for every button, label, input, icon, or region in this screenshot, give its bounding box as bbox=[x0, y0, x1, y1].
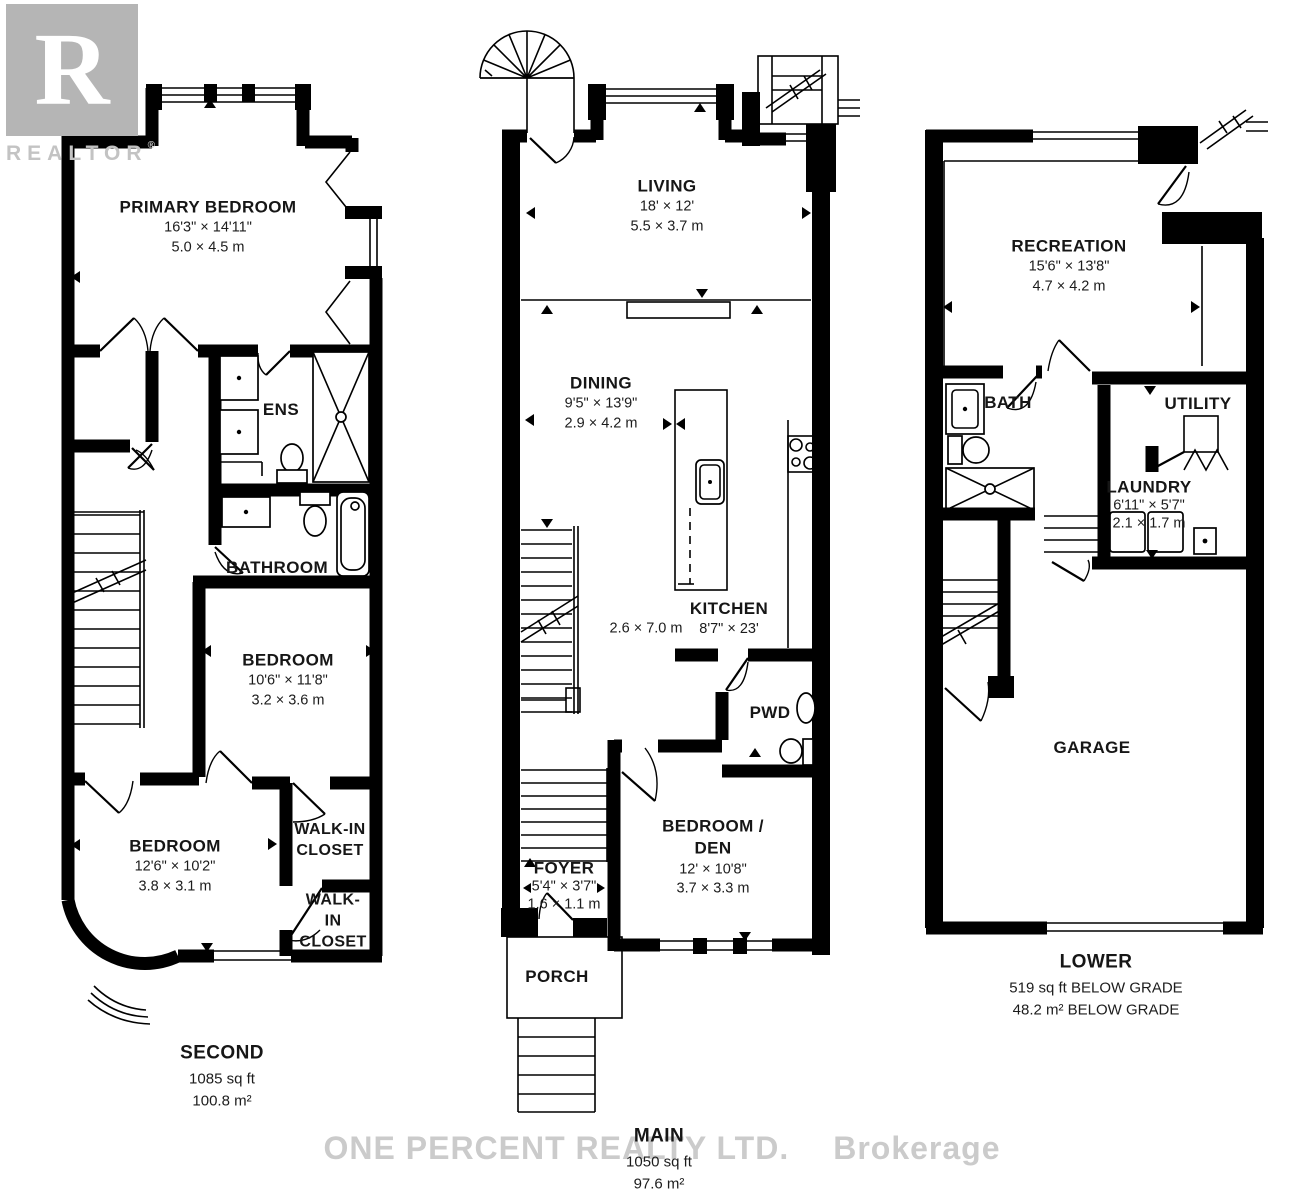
realtor-watermark: R REALTOR ® bbox=[6, 4, 155, 166]
room-label-recreation: RECREATION 15'6" × 13'8" 4.7 × 4.2 m bbox=[1011, 236, 1126, 297]
floor-label-main: MAIN 1050 sq ft 97.6 m² bbox=[626, 1122, 692, 1196]
main-stairs bbox=[521, 526, 607, 862]
lower-floor-plan bbox=[926, 110, 1268, 931]
floor-label-lower: LOWER 519 sq ft BELOW GRADE 48.2 m² BELO… bbox=[1009, 948, 1182, 1022]
room-label-primary-bedroom: PRIMARY BEDROOM 16'3" × 14'11" 5.0 × 4.5… bbox=[120, 197, 297, 258]
room-label-kitchen-metric: 2.6 × 7.0 m bbox=[610, 619, 683, 638]
exterior-stairs bbox=[758, 56, 860, 124]
room-label-bedroom-den: BEDROOM / DEN 12' × 10'8" 3.7 × 3.3 m bbox=[651, 815, 775, 898]
second-stairs bbox=[70, 510, 146, 728]
brokerage-suffix: Brokerage bbox=[833, 1130, 1000, 1167]
room-label-walk-in-closet-1: WALK-IN CLOSET bbox=[280, 819, 380, 861]
brokerage-name: ONE PERCENT REALTY LTD. bbox=[324, 1130, 790, 1167]
floor-label-second: SECOND 1085 sq ft 100.8 m² bbox=[180, 1039, 264, 1113]
room-label-bedroom-bottom: BEDROOM 12'6" × 10'2" 3.8 × 3.1 m bbox=[129, 836, 221, 897]
realtor-logo-letter: R bbox=[34, 18, 109, 122]
room-label-bath: BATH bbox=[984, 392, 1032, 414]
room-label-living: LIVING 18' × 12' 5.5 × 3.7 m bbox=[631, 176, 704, 237]
room-label-dining: DINING 9'5" × 13'9" 2.9 × 4.2 m bbox=[565, 373, 638, 434]
realtor-logo-text: REALTOR ® bbox=[6, 142, 155, 166]
room-label-foyer: FOYER 5'4" × 3'7" 1.6 × 1.1 m bbox=[528, 858, 601, 913]
room-label-ensuite: ENS bbox=[263, 399, 299, 421]
realtor-logo-square: R bbox=[6, 4, 138, 136]
room-label-porch: PORCH bbox=[525, 966, 588, 988]
room-label-powder-room: PWD bbox=[750, 702, 791, 724]
room-label-bedroom-middle: BEDROOM 10'6" × 11'8" 3.2 × 3.6 m bbox=[242, 650, 334, 711]
room-label-utility: UTILITY bbox=[1164, 393, 1231, 415]
porch-steps bbox=[507, 937, 622, 1112]
spiral-staircase bbox=[480, 31, 574, 163]
room-label-garage: GARAGE bbox=[1053, 737, 1130, 759]
room-label-laundry: LAUNDRY 6'11" × 5'7" 2.1 × 1.7 m bbox=[1106, 477, 1191, 532]
floorplan-page: R REALTOR ® ONE PERCENT REALTY LTD. Brok… bbox=[0, 0, 1312, 1200]
room-label-kitchen: KITCHEN 8'7" × 23' bbox=[690, 598, 768, 640]
lower-stairs bbox=[936, 516, 1098, 648]
room-label-bathroom: BATHROOM bbox=[226, 557, 328, 579]
room-label-walk-in-closet-2: WALK-IN CLOSET bbox=[300, 889, 366, 952]
